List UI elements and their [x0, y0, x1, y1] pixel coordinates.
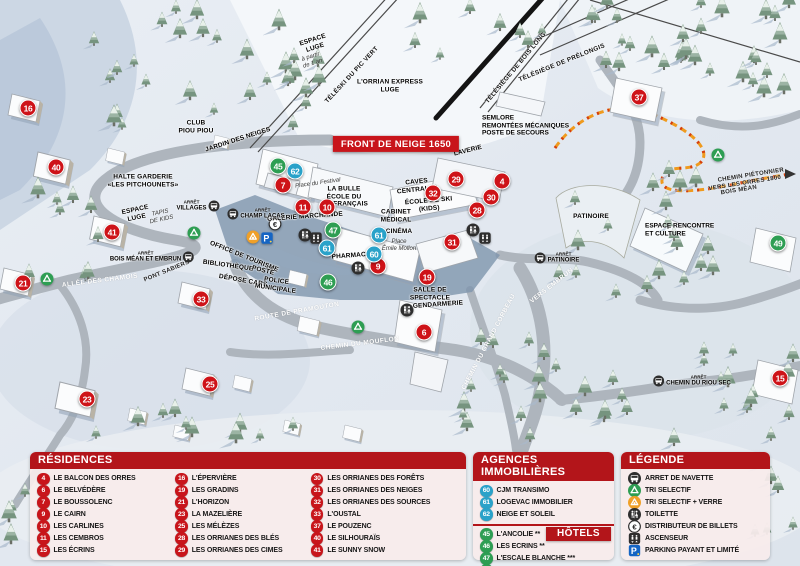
number-badge: 40	[311, 532, 324, 545]
residence-item: 29LES ORRIANES DES CIMES	[175, 544, 305, 556]
residence-item: 23LA MAZELIÈRE	[175, 509, 305, 521]
svg-text:€: €	[632, 522, 637, 531]
resort-map: P€ CLUB PIOU PIOUJARDIN DES NEIGESHALTE …	[0, 0, 800, 566]
residence-item: 19LES GRADINS	[175, 485, 305, 497]
number-badge: 28	[175, 532, 188, 545]
residences-header: RÉSIDENCES	[30, 452, 466, 469]
residence-item: 10LES CARLINES	[37, 521, 169, 533]
agency-item: 60CJM TRANSIMO	[480, 485, 607, 497]
number-badge: 10	[37, 520, 50, 533]
agency-item: 62NEIGE ET SOLEIL	[480, 509, 607, 521]
number-badge: 7	[37, 496, 50, 509]
hotel-item: 46LES ECRINS **	[480, 541, 607, 553]
number-badge: 61	[480, 497, 493, 510]
residences-title: RÉSIDENCES	[38, 454, 113, 466]
number-badge: 32	[311, 496, 324, 509]
number-badge: 37	[311, 520, 324, 533]
parking-icon: P	[628, 544, 641, 557]
residence-item: 41LE SUNNY SNOW	[311, 544, 459, 556]
residence-item: 6LE BELVÉDÈRE	[37, 485, 169, 497]
number-badge: 41	[311, 544, 324, 557]
hotel-item: 47L'ESCALE BLANCHE ***	[480, 552, 607, 564]
residence-item: 15LES ÉCRINS	[37, 544, 169, 556]
legend-item: TRI SELECTIF	[628, 485, 763, 497]
number-badge: 46	[480, 540, 493, 553]
number-badge: 4	[37, 473, 50, 486]
hotels-section: HÔTELS 45L'ANCOLIE **46LES ECRINS **47L'…	[473, 524, 614, 566]
number-badge: 45	[480, 528, 493, 541]
residence-item: 40LE SILHOURAÏS	[311, 532, 459, 544]
legend-item: €DISTRIBUTEUR DE BILLETS	[628, 521, 763, 533]
number-badge: 29	[175, 544, 188, 557]
legend-item: TOILETTE	[628, 509, 763, 521]
number-badge: 21	[175, 496, 188, 509]
number-badge: 6	[37, 485, 50, 498]
number-badge: 47	[480, 552, 493, 565]
residence-item: 16L'ÉPERVIÈRE	[175, 473, 305, 485]
number-badge: 19	[175, 485, 188, 498]
residence-item: 31LES ORRIANES DES NEIGES	[311, 485, 459, 497]
legend-item: TRI SELECTIF + VERRE	[628, 497, 763, 509]
number-badge: 25	[175, 520, 188, 533]
residence-item: 32LES ORRIANES DES SOURCES	[311, 497, 459, 509]
residence-item: 30LES ORRIANES DES FORÊTS	[311, 473, 459, 485]
residence-item: 11LES CEMBROS	[37, 532, 169, 544]
svg-text:P: P	[631, 546, 637, 556]
number-badge: 9	[37, 508, 50, 521]
legend-panel: LÉGENDE ARRET DE NAVETTETRI SELECTIFTRI …	[621, 452, 770, 560]
legend-item: PPARKING PAYANT ET LIMITÉ	[628, 544, 763, 556]
number-badge: 60	[480, 485, 493, 498]
residences-panel: RÉSIDENCES 4LE BALCON DES ORRES6LE BELVÉ…	[30, 452, 466, 560]
legend-item: ARRET DE NAVETTE	[628, 473, 763, 485]
residence-item: 9LE CAIRN	[37, 509, 169, 521]
residence-item: 4LE BALCON DES ORRES	[37, 473, 169, 485]
number-badge: 11	[37, 532, 50, 545]
number-badge: 31	[311, 485, 324, 498]
residence-item: 21L'HORIZON	[175, 497, 305, 509]
hotels-header: HÔTELS	[546, 527, 611, 541]
residence-item: 33L'OUSTAL	[311, 509, 459, 521]
number-badge: 23	[175, 508, 188, 521]
residence-item: 28LES ORRIANES DES BLÉS	[175, 532, 305, 544]
number-badge: 62	[480, 508, 493, 521]
residence-item: 37LE POUZENC	[311, 521, 459, 533]
number-badge: 16	[175, 473, 188, 486]
agencies-title: AGENCES IMMOBILIÈRES	[481, 454, 565, 478]
residence-item: 25LES MÉLÈZES	[175, 521, 305, 533]
number-badge: 30	[311, 473, 324, 486]
legend-header: LÉGENDE	[621, 452, 770, 469]
agencies-hotels-panel: AGENCES IMMOBILIÈRES 60CJM TRANSIMO61LOG…	[473, 452, 614, 560]
residence-item: 7LE BOUSSOLENC	[37, 497, 169, 509]
agency-item: 61LOGEVAC IMMOBILIER	[480, 497, 607, 509]
hotels-title: HÔTELS	[557, 528, 600, 539]
legend-title: LÉGENDE	[629, 454, 684, 466]
number-badge: 33	[311, 508, 324, 521]
legend-item: ASCENSEUR	[628, 532, 763, 544]
number-badge: 15	[37, 544, 50, 557]
agencies-header: AGENCES IMMOBILIÈRES	[473, 452, 614, 481]
